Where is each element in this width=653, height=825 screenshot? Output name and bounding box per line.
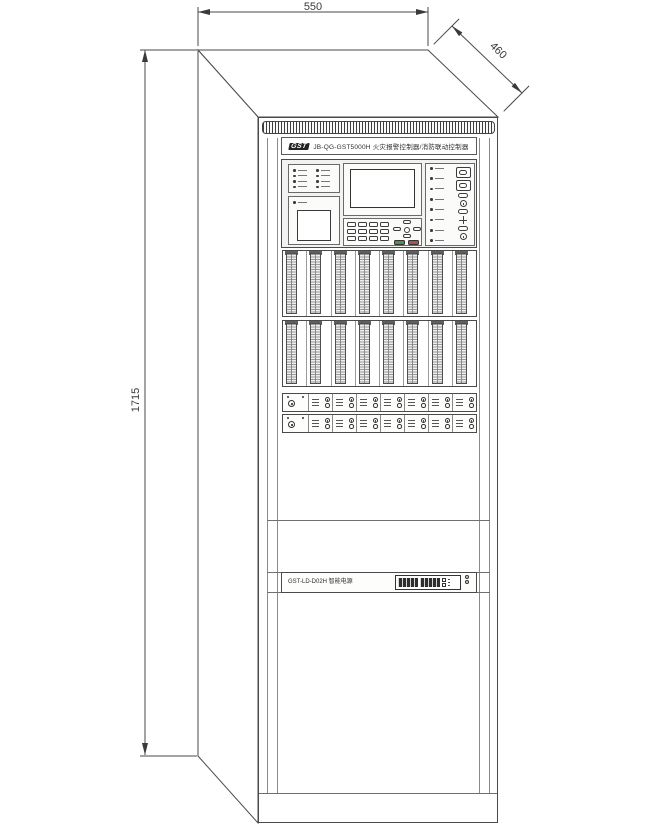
- round-button[interactable]: [469, 424, 474, 429]
- message-display-screen: [297, 210, 331, 241]
- reset-key-red[interactable]: [408, 240, 419, 245]
- module-label-lines: [384, 420, 395, 427]
- terminal-strip-icon: [310, 253, 321, 314]
- indicator-label-line: [435, 230, 444, 231]
- module-buttons: [349, 418, 354, 429]
- indicator-label-line: [298, 181, 307, 182]
- led-indicator-icon: [430, 177, 433, 180]
- status-led-column: [430, 167, 450, 242]
- indicator-label-line: [298, 202, 307, 203]
- dimension-depth-value: 460: [487, 40, 509, 61]
- module-label-lines: [432, 420, 443, 427]
- module-buttons: [373, 418, 378, 429]
- round-button[interactable]: [288, 400, 295, 407]
- main-control-panel: [281, 159, 477, 248]
- round-button[interactable]: [397, 424, 402, 429]
- power-side-knobs: [465, 575, 469, 584]
- cabinet-front-panel: GST JB-QG-GST5000H 火灾报警控制器/消防联动控制器: [258, 117, 498, 823]
- power-top-line-right: [476, 572, 490, 573]
- bus-module: [283, 394, 309, 411]
- loop-module-card: [356, 251, 380, 316]
- function-key[interactable]: [458, 226, 468, 231]
- module-buttons: [397, 397, 402, 408]
- zone-indicator-panel: [288, 164, 340, 193]
- zone-led-indicator-icon: [316, 174, 335, 179]
- terminal-strip-icon: [456, 253, 467, 314]
- terminal-strip-icon: [383, 323, 394, 384]
- indicator-label-line: [435, 199, 444, 200]
- keypad-key[interactable]: [347, 229, 356, 234]
- round-button[interactable]: [469, 403, 474, 408]
- status-led-indicator-icon: [430, 188, 450, 191]
- confirm-key-green[interactable]: [394, 240, 405, 245]
- round-button[interactable]: [445, 418, 450, 423]
- small-button[interactable]: [442, 578, 446, 582]
- nav-left-key[interactable]: [393, 227, 401, 231]
- led-indicator-icon: [302, 417, 304, 419]
- cabinet-left-face: [198, 50, 258, 823]
- power-display-box: [395, 575, 461, 590]
- zone-led-indicator-icon: [293, 185, 312, 190]
- keypad-key[interactable]: [358, 236, 367, 241]
- round-button[interactable]: [460, 233, 467, 240]
- indicator-label-line: [435, 178, 444, 179]
- indicator-label-line: [321, 181, 330, 182]
- module-label-lines: [360, 420, 371, 427]
- relay-module: [309, 394, 333, 411]
- zone-led-indicator-icon: [316, 185, 335, 190]
- round-button[interactable]: [325, 397, 330, 402]
- navigation-arrows-icon: [393, 220, 421, 246]
- panel-divider-line: [267, 520, 490, 521]
- loop-module-card: [429, 321, 453, 386]
- seven-segment-display-icon: [420, 578, 440, 587]
- round-button[interactable]: [469, 418, 474, 423]
- loop-module-card: [356, 321, 380, 386]
- relay-module-strip: [309, 415, 476, 432]
- round-button[interactable]: [421, 418, 426, 423]
- status-led-indicator-icon: [430, 198, 450, 201]
- function-key[interactable]: [458, 209, 468, 214]
- module-label-lines: [384, 399, 395, 406]
- loop-module-card: [283, 251, 307, 316]
- round-button[interactable]: [288, 421, 295, 428]
- loop-module-card: [307, 321, 331, 386]
- plus-adjust-icon: [459, 216, 467, 224]
- dimension-height-value: 1715: [130, 388, 142, 412]
- round-button[interactable]: [421, 397, 426, 402]
- terminal-strip-icon: [407, 323, 418, 384]
- relay-module: [453, 394, 476, 411]
- round-button[interactable]: [373, 403, 378, 408]
- led-indicator-icon: [430, 229, 433, 232]
- relay-module: [453, 415, 476, 432]
- lcd-panel: [343, 163, 422, 216]
- round-button[interactable]: [349, 397, 354, 402]
- vent-grille-icon: [262, 121, 495, 134]
- relay-module: [429, 415, 453, 432]
- module-label-lines: [456, 420, 467, 427]
- module-buttons: [325, 397, 330, 408]
- relay-module: [429, 394, 453, 411]
- key-switch-icon[interactable]: [456, 167, 471, 178]
- indicator-label-line: [435, 219, 444, 220]
- led-indicator-icon: [293, 175, 296, 178]
- loop-module-card: [380, 251, 404, 316]
- frame-rail-right-outer: [489, 138, 490, 793]
- relay-module: [357, 394, 381, 411]
- loop-module-card: [380, 321, 404, 386]
- module-label-lines: [336, 420, 347, 427]
- module-label-lines: [336, 399, 347, 406]
- led-indicator-icon: [302, 396, 304, 398]
- terminal-strip-icon: [286, 253, 297, 314]
- keypad-key[interactable]: [369, 222, 378, 227]
- relay-module: [357, 415, 381, 432]
- relay-module: [381, 394, 405, 411]
- power-led-column: [448, 579, 450, 587]
- keypad-key[interactable]: [347, 222, 356, 227]
- module-label-lines: [360, 399, 371, 406]
- round-button[interactable]: [465, 575, 469, 579]
- relay-module: [333, 394, 357, 411]
- module-buttons: [469, 418, 474, 429]
- round-button[interactable]: [349, 418, 354, 423]
- relay-module-strip: [309, 394, 476, 411]
- power-bottom-line-left: [267, 592, 282, 593]
- module-buttons: [445, 397, 450, 408]
- round-button[interactable]: [465, 580, 469, 584]
- led-indicator-icon: [293, 169, 296, 172]
- keypad-key[interactable]: [358, 222, 367, 227]
- drawing-canvas: 550 460 1715 GST JB-QG-GST5000H 火灾报: [0, 0, 653, 825]
- relay-module: [405, 394, 429, 411]
- zone-led-indicator-icon: [316, 179, 335, 184]
- indicator-label-line: [321, 175, 330, 176]
- module-buttons: [397, 418, 402, 429]
- keypad-panel: [343, 218, 422, 246]
- terminal-strip-icon: [359, 253, 370, 314]
- power-supply-unit: GST-LD-D02H 智能电源: [281, 572, 477, 593]
- status-led-indicator-icon: [430, 229, 450, 232]
- round-button[interactable]: [397, 403, 402, 408]
- display-caption-icon: [293, 201, 307, 204]
- indicator-label-line: [298, 175, 307, 176]
- status-led-indicator-icon: [430, 177, 450, 180]
- module-label-lines: [312, 399, 323, 406]
- round-button[interactable]: [373, 424, 378, 429]
- round-button[interactable]: [421, 403, 426, 408]
- led-indicator-icon: [430, 167, 433, 170]
- nav-right-key[interactable]: [413, 227, 421, 231]
- terminal-strip-icon: [456, 323, 467, 384]
- terminal-strip-icon: [432, 323, 443, 384]
- relay-module: [333, 415, 357, 432]
- round-button[interactable]: [445, 403, 450, 408]
- message-display-panel: [288, 196, 340, 245]
- led-indicator-icon: [316, 175, 319, 178]
- led-indicator-icon: [430, 208, 433, 211]
- loop-module-bank-2: [282, 320, 477, 387]
- round-button[interactable]: [469, 397, 474, 402]
- frame-rail-left-inner: [277, 138, 278, 793]
- led-indicator-icon: [430, 188, 433, 191]
- module-label-lines: [408, 399, 419, 406]
- nav-up-key[interactable]: [403, 220, 411, 224]
- round-button[interactable]: [397, 397, 402, 402]
- zone-led-indicator-icon: [293, 174, 312, 179]
- relay-module: [381, 415, 405, 432]
- led-indicator-icon: [430, 198, 433, 201]
- relay-module-row-1: [282, 393, 477, 412]
- keypad-key[interactable]: [369, 236, 378, 241]
- module-buttons: [469, 397, 474, 408]
- module-label-lines: [312, 420, 323, 427]
- module-buttons: [325, 418, 330, 429]
- terminal-strip-icon: [335, 253, 346, 314]
- nameplate-title: JB-QG-GST5000H 火灾报警控制器/消防联动控制器: [313, 141, 468, 151]
- indicator-label-line: [298, 186, 307, 187]
- led-indicator-icon: [287, 396, 289, 398]
- keypad-key[interactable]: [380, 229, 389, 234]
- terminal-strip-icon: [286, 323, 297, 384]
- status-led-indicator-icon: [430, 219, 450, 222]
- terminal-strip-icon: [432, 253, 443, 314]
- power-bottom-line-right: [476, 592, 490, 593]
- keypad-key[interactable]: [380, 236, 389, 241]
- loop-module-card: [404, 321, 428, 386]
- round-button[interactable]: [325, 418, 330, 423]
- loop-module-card: [453, 321, 476, 386]
- indicator-label-line: [435, 168, 444, 169]
- seven-segment-display-icon: [398, 578, 418, 587]
- round-button[interactable]: [460, 200, 467, 207]
- loop-module-card: [453, 251, 476, 316]
- plinth-top-line: [259, 793, 497, 794]
- round-button[interactable]: [349, 403, 354, 408]
- keypad-key[interactable]: [347, 236, 356, 241]
- power-unit-label: GST-LD-D02H 智能电源: [288, 573, 353, 592]
- round-button[interactable]: [373, 397, 378, 402]
- module-label-lines: [456, 399, 467, 406]
- lcd-screen: [350, 169, 415, 208]
- keypad-key[interactable]: [380, 222, 389, 227]
- led-indicator-icon: [316, 169, 319, 172]
- led-indicator-icon: [287, 417, 289, 419]
- status-control-panel: [425, 163, 475, 246]
- led-indicator-icon: [293, 186, 296, 189]
- module-buttons: [349, 397, 354, 408]
- brand-logo-icon: GST: [289, 143, 310, 150]
- round-button[interactable]: [349, 424, 354, 429]
- terminal-strip-icon: [359, 323, 370, 384]
- led-indicator-icon: [316, 180, 319, 183]
- loop-module-card: [283, 321, 307, 386]
- zone-led-indicator-icon: [316, 168, 335, 173]
- nav-down-key[interactable]: [403, 234, 411, 238]
- loop-module-card: [404, 251, 428, 316]
- round-button[interactable]: [397, 418, 402, 423]
- module-buttons: [421, 418, 426, 429]
- status-led-indicator-icon: [430, 239, 450, 242]
- zone-led-indicator-icon: [293, 179, 312, 184]
- loop-module-card: [429, 251, 453, 316]
- round-button[interactable]: [421, 424, 426, 429]
- terminal-strip-icon: [383, 253, 394, 314]
- frame-rail-right-inner: [479, 138, 480, 793]
- round-button[interactable]: [325, 403, 330, 408]
- zone-led-indicator-icon: [293, 168, 312, 173]
- keypad-key-grid: [347, 222, 389, 241]
- control-button-column: [454, 167, 472, 242]
- led-indicator-icon: [293, 180, 296, 183]
- indicator-label-line: [435, 240, 444, 241]
- round-button[interactable]: [445, 397, 450, 402]
- power-top-line-left: [267, 572, 282, 573]
- bus-module: [283, 415, 309, 432]
- terminal-strip-icon: [407, 253, 418, 314]
- relay-module-row-2: [282, 414, 477, 433]
- dimension-top-width-value: 550: [304, 1, 322, 13]
- loop-module-card: [332, 321, 356, 386]
- led-indicator-icon: [430, 239, 433, 242]
- loop-module-card: [307, 251, 331, 316]
- led-indicator-icon: [316, 186, 319, 189]
- indicator-label-line: [321, 170, 330, 171]
- module-buttons: [445, 418, 450, 429]
- status-led-indicator-icon: [430, 167, 450, 170]
- round-button[interactable]: [373, 418, 378, 423]
- indicator-label-line: [435, 209, 444, 210]
- terminal-strip-icon: [310, 323, 321, 384]
- round-button[interactable]: [445, 424, 450, 429]
- indicator-label-line: [298, 170, 307, 171]
- frame-rail-left-outer: [267, 138, 268, 793]
- led-indicator-icon: [293, 201, 296, 204]
- loop-module-bank-1: [282, 250, 477, 317]
- indicator-label-line: [435, 188, 444, 189]
- led-indicator-icon: [430, 219, 433, 222]
- round-button[interactable]: [325, 424, 330, 429]
- status-led-indicator-icon: [430, 208, 450, 211]
- module-label-lines: [432, 399, 443, 406]
- small-button[interactable]: [442, 583, 446, 587]
- relay-module: [405, 415, 429, 432]
- key-switch-icon[interactable]: [456, 180, 471, 191]
- nameplate-bar: GST JB-QG-GST5000H 火灾报警控制器/消防联动控制器: [281, 137, 477, 155]
- relay-module: [309, 415, 333, 432]
- loop-module-card: [332, 251, 356, 316]
- keypad-key[interactable]: [369, 229, 378, 234]
- nav-ok-key[interactable]: [404, 227, 410, 233]
- keypad-key[interactable]: [358, 229, 367, 234]
- module-label-lines: [408, 420, 419, 427]
- power-buttons: [442, 578, 446, 587]
- dimension-height: [140, 50, 197, 756]
- terminal-strip-icon: [335, 323, 346, 384]
- function-key[interactable]: [458, 193, 468, 198]
- module-buttons: [373, 397, 378, 408]
- indicator-label-line: [321, 186, 330, 187]
- module-buttons: [421, 397, 426, 408]
